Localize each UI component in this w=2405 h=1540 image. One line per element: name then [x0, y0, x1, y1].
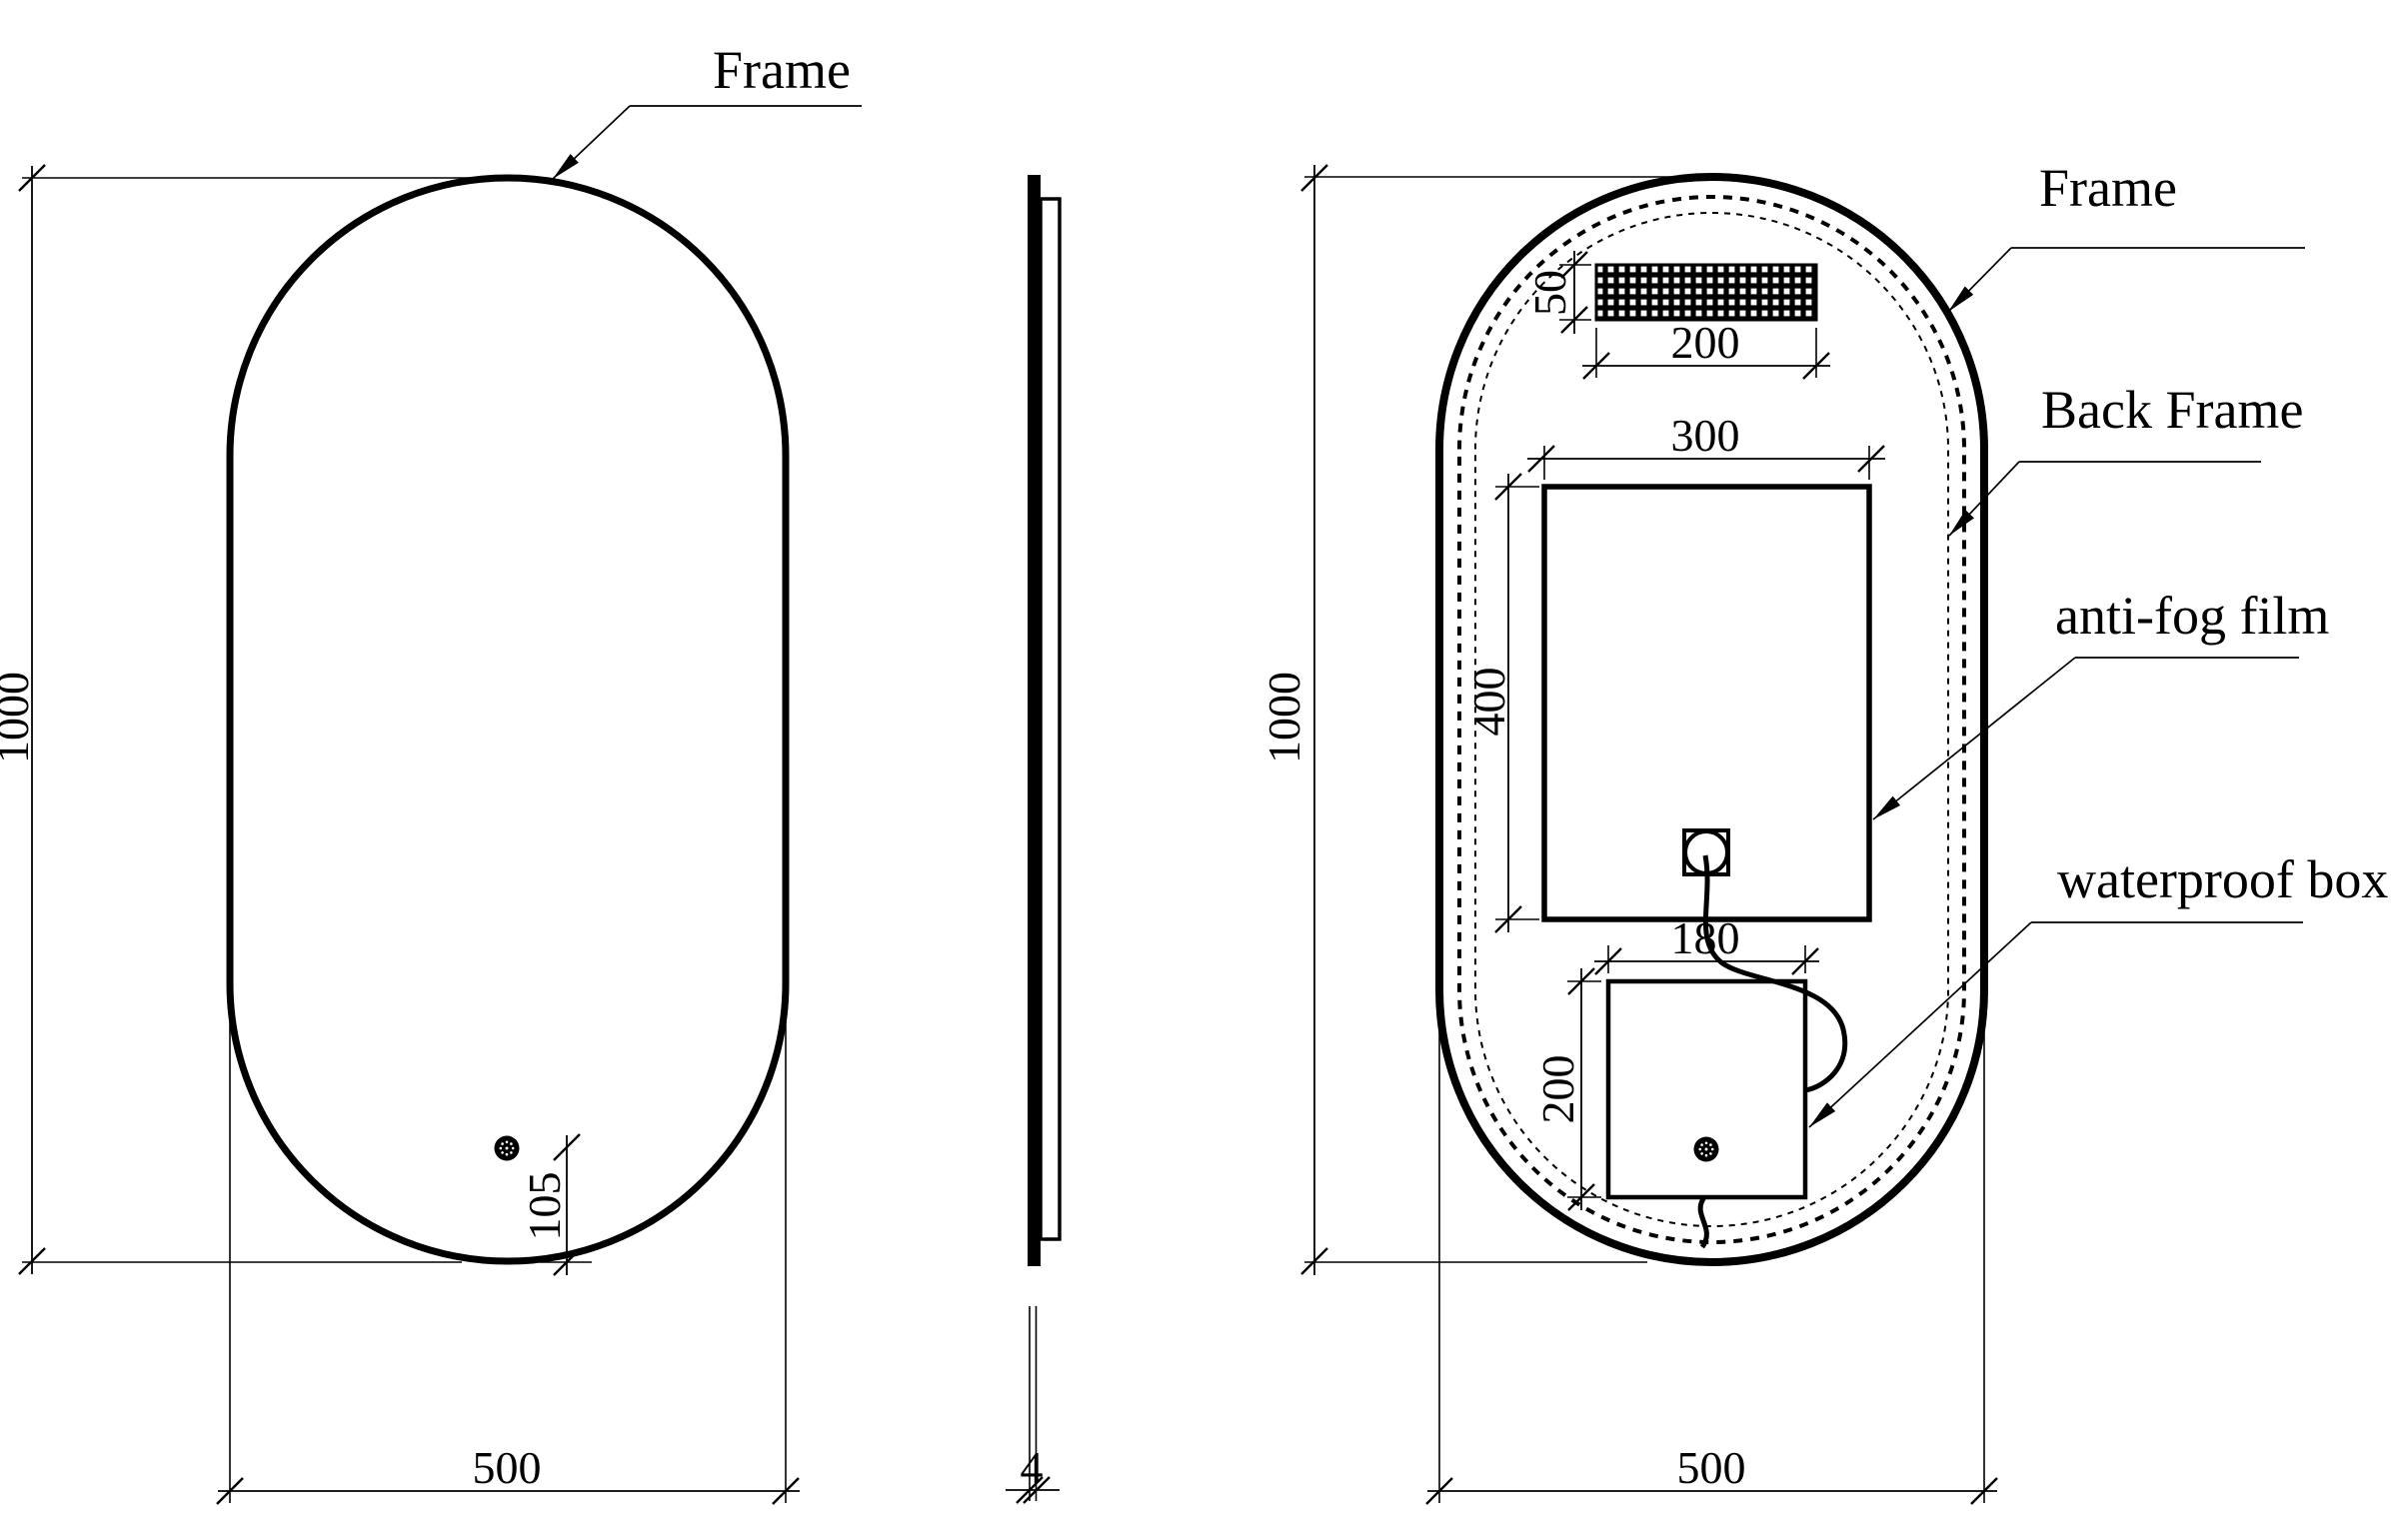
- back-frame-outline-label: Frame: [2039, 158, 2177, 218]
- front-sensor-offset-dim-text: 105: [519, 1172, 570, 1241]
- back-frame-label: Back Frame: [2041, 380, 2303, 440]
- anti-fog-film-label: anti-fog film: [2055, 586, 2329, 646]
- back-width-dim-text: 500: [1677, 1442, 1746, 1493]
- side-mirror-glass: [1028, 175, 1041, 1266]
- waterproof-box-label: waterproof box: [2057, 849, 2388, 909]
- box-height-dim-text: 200: [1532, 1055, 1583, 1124]
- front-frame-label: Frame: [713, 40, 851, 100]
- side-thickness-dim-text: 4: [1021, 1442, 1044, 1493]
- led-width-dim-text: 200: [1671, 317, 1740, 368]
- waterproof-box-dot: [1694, 1137, 1719, 1162]
- back-height-dim-text: 1000: [1258, 672, 1309, 764]
- box-width-dim-text: 180: [1671, 912, 1740, 963]
- film-width-dim-text: 300: [1671, 410, 1740, 461]
- sheet-background: [0, 0, 2405, 1540]
- front-touch-sensor-dot: [495, 1136, 520, 1161]
- front-width-dim-text: 500: [473, 1442, 542, 1493]
- led-strip: [1596, 265, 1816, 320]
- film-height-dim-text: 400: [1463, 668, 1514, 737]
- led-height-dim-text: 50: [1524, 270, 1575, 316]
- drawing-sheet: Frame 1000 500 105: [0, 0, 2405, 1540]
- mirror-technical-drawing: Frame 1000 500 105: [0, 0, 2405, 1540]
- front-height-dim-text: 1000: [0, 672, 38, 764]
